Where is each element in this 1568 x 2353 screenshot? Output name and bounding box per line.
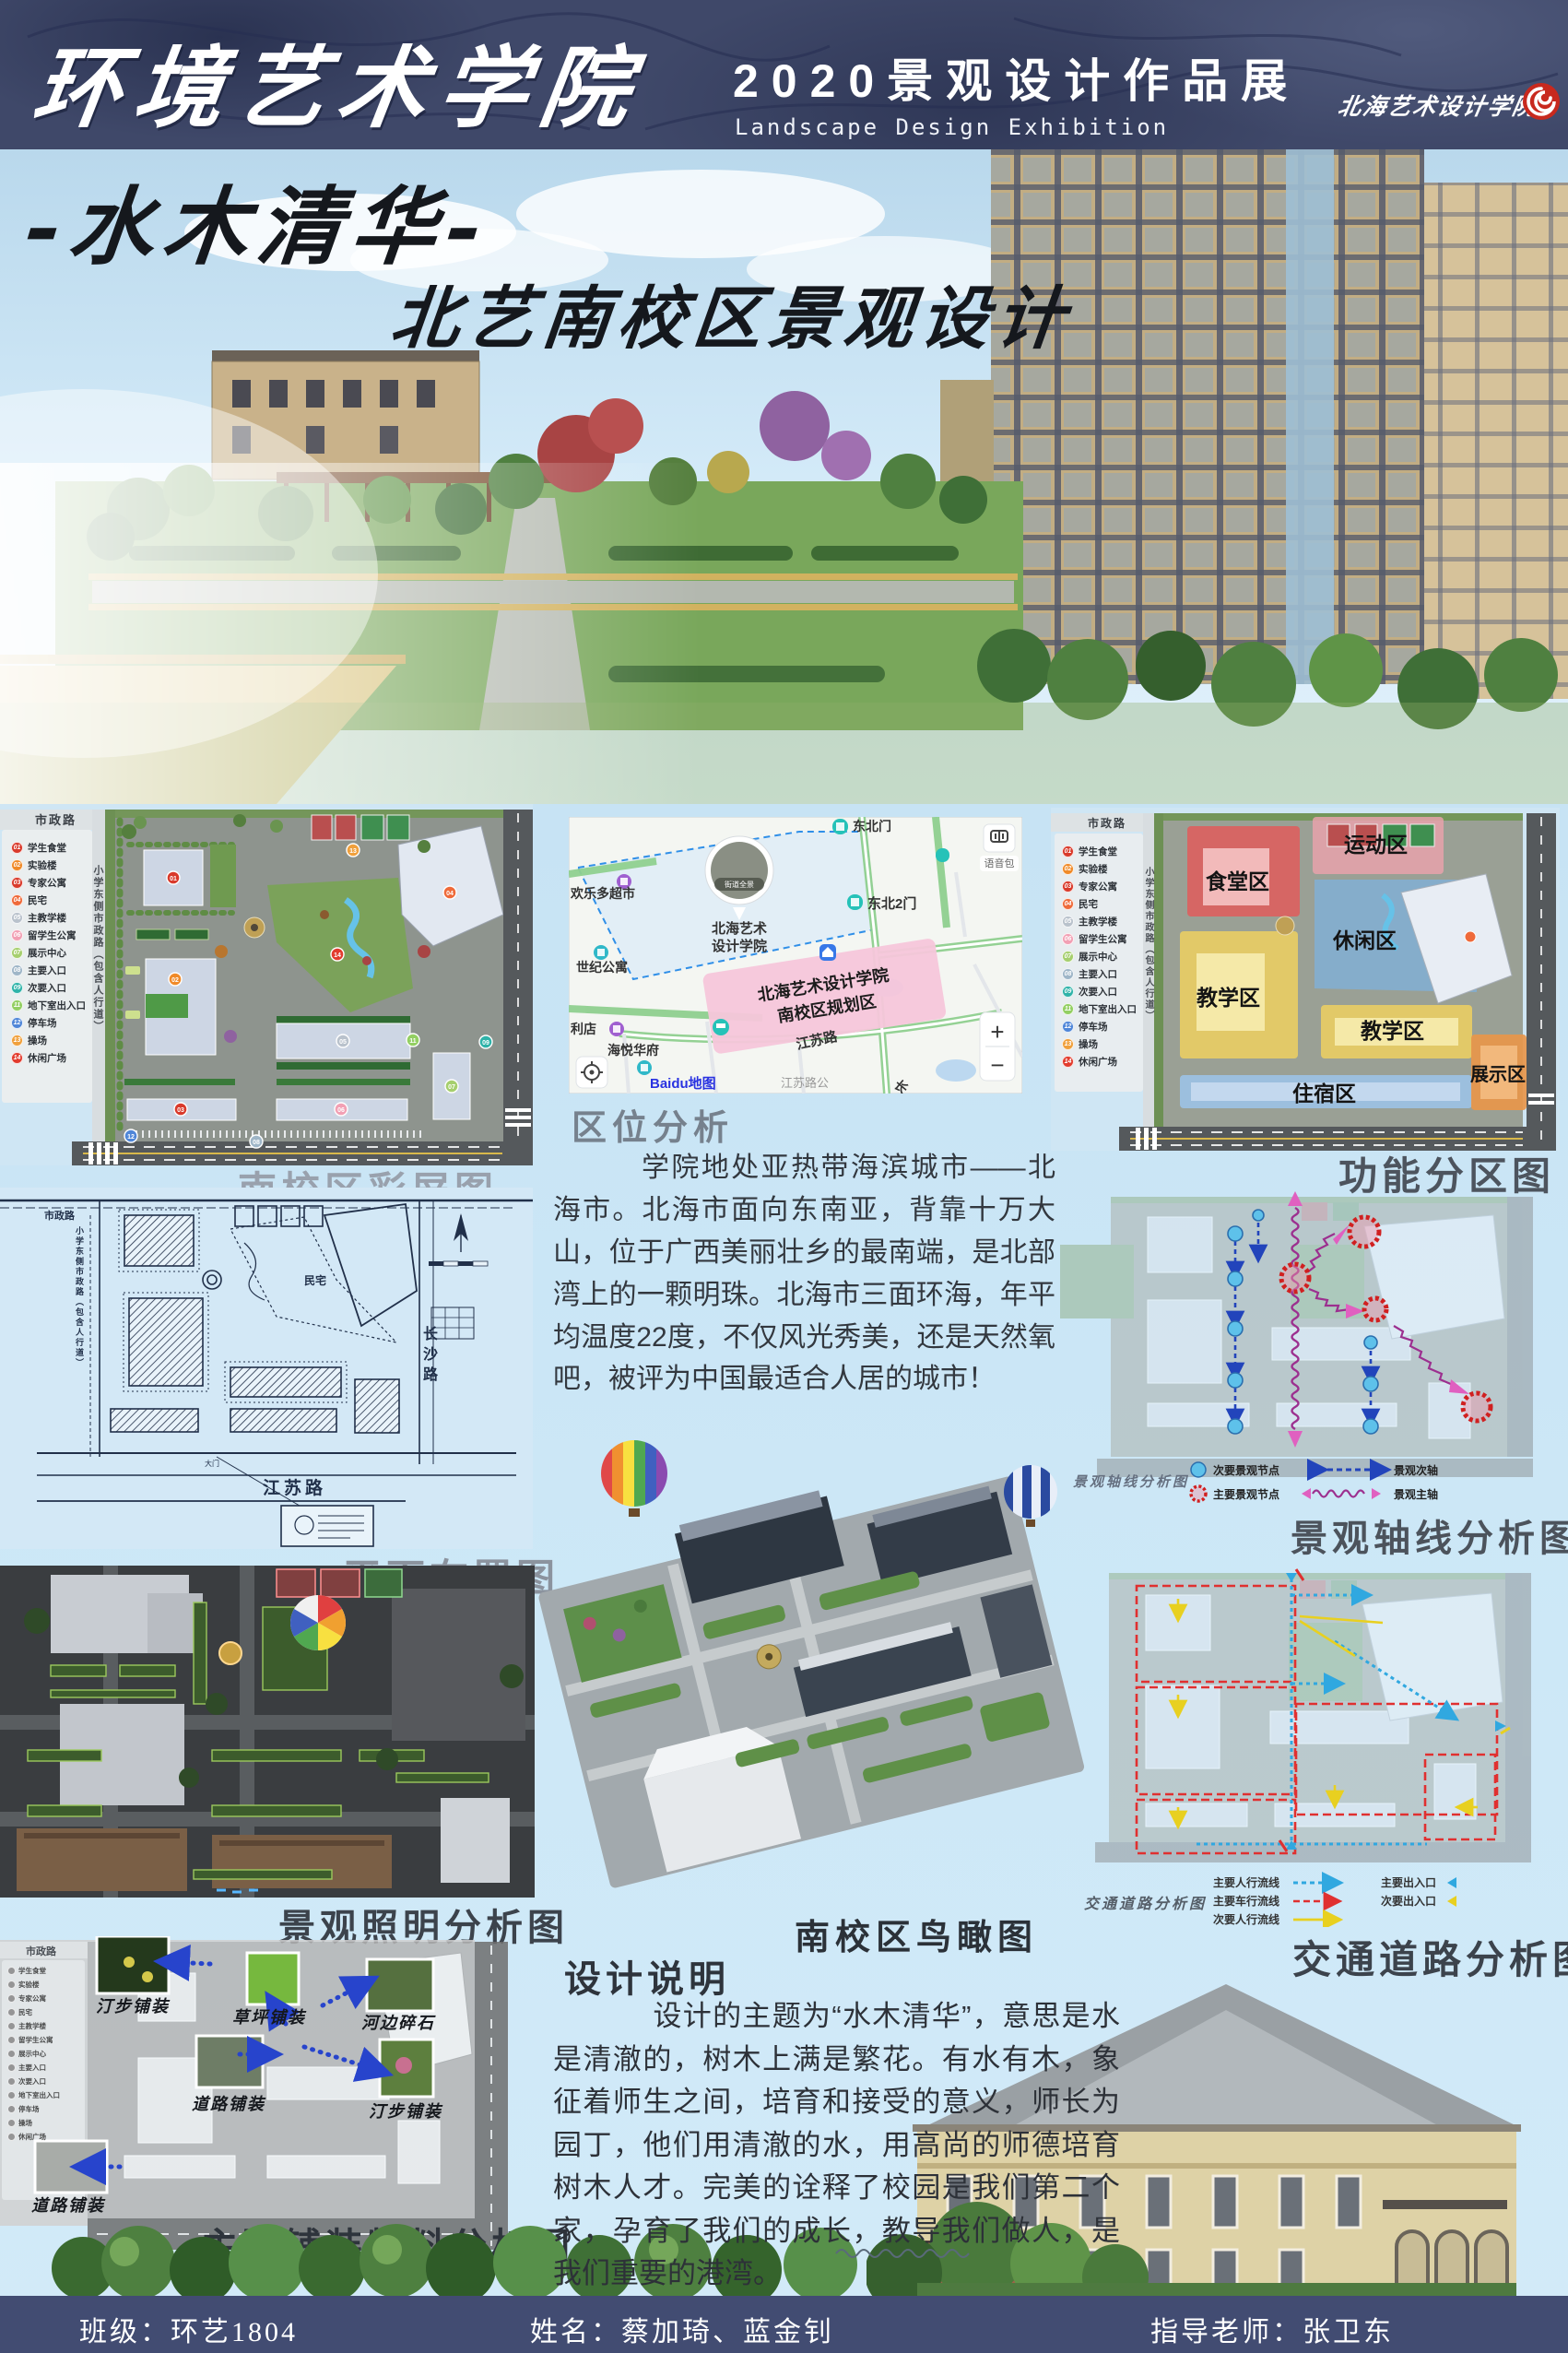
pavement-legend: 学生食堂 实验楼 专家公寓 民宅 主教学楼 留学生公寓 展示中心 主要入口 次要… — [7, 1966, 60, 2142]
traffic-legend-veh-main: 主要车行流线 — [1213, 1894, 1279, 1908]
legend-item: 06留学生公寓 — [11, 928, 86, 942]
axis-legend-main-node: 主要景观节点 — [1213, 1487, 1279, 1501]
legend-item: 05主教学楼 — [11, 911, 86, 925]
school-logo-text: 北海艺术设计学院 — [1336, 89, 1540, 122]
legend-item: 08主要入口 — [1062, 967, 1137, 981]
legend-item: 留学生公寓 — [7, 2035, 60, 2045]
zone-exhibition: 展示区 — [1470, 1065, 1526, 1085]
legend-item: 主教学楼 — [7, 2021, 60, 2031]
legend-item: 05主教学楼 — [1062, 915, 1137, 928]
header-band: 环境艺术学院 2020景观设计作品展 Landscape Design Exhi… — [0, 0, 1568, 149]
lighting-analysis-art — [0, 1566, 535, 1898]
legend-item: 地下室出入口 — [7, 2090, 60, 2100]
traffic-legend-entry-main: 主要出入口 — [1381, 1875, 1436, 1889]
traffic-legend-ped-main: 主要人行流线 — [1213, 1875, 1279, 1889]
legend-item: 休闲广场 — [7, 2132, 60, 2142]
axis-legend-main-axis: 景观主轴 — [1394, 1487, 1438, 1501]
school-title: 环境艺术学院 — [26, 17, 653, 145]
map-ne-gate: 东北门 — [853, 819, 891, 834]
legend-item: 07展示中心 — [11, 946, 86, 960]
traffic-legend-ped-secondary: 次要人行流线 — [1213, 1912, 1279, 1926]
exhibition-subtitle: Landscape Design Exhibition — [735, 114, 1169, 140]
legend-item: 06留学生公寓 — [1062, 932, 1137, 946]
legend-item: 14休闲广场 — [11, 1051, 86, 1065]
traffic-inner-label: 交通道路分析图 — [1084, 1895, 1207, 1912]
pin-12: 12 — [127, 1134, 135, 1141]
zoom-in-button[interactable]: + — [990, 1018, 1004, 1046]
school-logo-icon — [1521, 81, 1562, 122]
road-municipal-label: 市政路 — [35, 813, 77, 827]
exhibition-title: 2020景观设计作品展 — [733, 44, 1300, 111]
legend-item: 13操场 — [11, 1034, 86, 1047]
traffic-analysis-art: 主要人行流线 主要出入口 主要车行流线 次要出入口 次要人行流线 交通道路分析图 — [1058, 1566, 1568, 1927]
map-zoom-control[interactable]: + − — [980, 1012, 1015, 1081]
zone-canteen: 食堂区 — [1206, 869, 1269, 893]
bp-residence: 民宅 — [304, 1273, 326, 1287]
axis-analysis-art: 次要景观节点 景观次轴 主要景观节点 景观主轴 景观轴线分析图 — [1060, 1189, 1562, 1505]
legend-item: 09次要入口 — [11, 981, 86, 995]
legend-item: 展示中心 — [7, 2049, 60, 2059]
master-plan-legend: 01学生食堂 02实验楼 03专家公寓 04民宅 05主教学楼 06留学生公寓 … — [11, 841, 86, 1065]
legend-item: 民宅 — [7, 2007, 60, 2017]
pin-09: 09 — [482, 1040, 489, 1046]
college-label-1: 北海艺术 — [712, 920, 767, 937]
legend-item: 12停车场 — [1062, 1020, 1137, 1034]
legend-item: 实验楼 — [7, 1980, 60, 1990]
legend-item: 04民宅 — [11, 893, 86, 907]
pin-04: 04 — [446, 891, 454, 897]
axis-legend-secondary-axis: 景观次轴 — [1394, 1463, 1438, 1477]
legend-item: 02实验楼 — [11, 858, 86, 872]
zone-teaching-2: 教学区 — [1361, 1019, 1424, 1043]
pavement-label-stepping2: 汀步铺装 — [369, 2102, 443, 2121]
bp-road-municipal: 市政路 — [44, 1209, 76, 1222]
voice-pack-label: 语音包 — [984, 857, 1015, 869]
footer-teacher: 指导老师：张卫东 — [1150, 2309, 1394, 2349]
pin-03: 03 — [177, 1107, 184, 1114]
pv-road-municipal: 市政路 — [26, 1945, 57, 1957]
location-heading: 区位分析 — [572, 1099, 734, 1150]
footer-names: 姓名：蔡加琦、蓝金钊 — [530, 2309, 834, 2349]
location-map: 北海艺术设计学院 南校区规划区 街道全景 北海艺术 设计学院 东北门 东北2门 — [569, 817, 1022, 1094]
birdseye-caption: 南校区鸟瞰图 — [795, 1909, 1038, 1959]
legend-item: 04民宅 — [1062, 897, 1137, 911]
legend-item: 14休闲广场 — [1062, 1055, 1137, 1069]
map-bus-stop: 江苏路公 — [781, 1076, 829, 1090]
legend-item: 学生食堂 — [7, 1966, 60, 1976]
locate-button[interactable] — [576, 1057, 607, 1088]
pin-05: 05 — [339, 1039, 347, 1046]
pavement-label-road2: 道路铺装 — [31, 2196, 106, 2215]
legend-item: 02实验楼 — [1062, 862, 1137, 876]
zone-leisure: 休闲区 — [1332, 928, 1397, 952]
pin-02: 02 — [171, 977, 179, 984]
bp-gate: 大门 — [205, 1459, 219, 1468]
hero-sub-title: 北艺南校区景观设计 — [386, 264, 1077, 362]
pin-13: 13 — [349, 848, 357, 855]
map-supermarket: 欢乐多超市 — [570, 886, 635, 901]
legend-item: 11地下室出入口 — [11, 999, 86, 1012]
footer-class: 班级：环艺1804 — [79, 2309, 298, 2349]
college-label-2: 设计学院 — [712, 938, 767, 954]
axis-legend-secondary-node: 次要景观节点 — [1213, 1463, 1279, 1477]
legend-item: 12停车场 — [11, 1016, 86, 1030]
pavement-label-riverstone: 河边碎石 — [361, 2014, 436, 2032]
pin-06: 06 — [337, 1107, 345, 1114]
road-schoolside-label-2: 小学东侧市政路（包含人行道） — [1141, 867, 1155, 1106]
pin-14: 14 — [334, 952, 341, 959]
pavement-label-stepping1: 汀步铺装 — [96, 1997, 171, 2016]
map-store: 利店 — [571, 1022, 596, 1036]
legend-item: 停车场 — [7, 2104, 60, 2114]
pavement-overlays: 汀步铺装 草坪铺装 河边碎石 道路铺装 汀步铺装 道路铺装 市政路 — [0, 1936, 544, 2255]
footer-band: 班级：环艺1804 姓名：蔡加琦、蓝金钊 指导老师：张卫东 — [0, 2296, 1568, 2353]
bp-road-schoolside: 小学东侧市政路（包含人行道） — [74, 1226, 86, 1448]
legend-item: 01学生食堂 — [1062, 845, 1137, 858]
road-municipal-label-2: 市政路 — [1088, 816, 1126, 830]
pin-07: 07 — [448, 1084, 455, 1091]
zone-sports: 运动区 — [1344, 833, 1408, 857]
bp-road-changsha: 长沙路 — [417, 1326, 439, 1400]
baidu-logo: Baidu地图 — [650, 1075, 716, 1092]
zone-teaching-1: 教学区 — [1197, 986, 1260, 1010]
map-apartment: 世纪公寓 — [576, 960, 628, 975]
legend-item: 09次要入口 — [1062, 985, 1137, 999]
legend-item: 次要入口 — [7, 2076, 60, 2087]
pavement-label-road1: 道路铺装 — [192, 2095, 266, 2113]
road-schoolside-label: 小学东侧市政路（包含人行道） — [90, 865, 105, 1123]
map-estate: 海悦华府 — [607, 1043, 659, 1058]
traffic-legend-entry-secondary: 次要出入口 — [1381, 1894, 1436, 1908]
axis-caption: 景观轴线分析图 — [1291, 1508, 1568, 1562]
map-ne-gate2: 东北2门 — [867, 895, 916, 912]
legend-item: 01学生食堂 — [11, 841, 86, 855]
legend-item: 13操场 — [1062, 1037, 1137, 1051]
pin-01: 01 — [170, 876, 177, 882]
location-body: 学院地处亚热带海滨城市——北海市。北海市面向东南亚，背靠十万大山，位于广西美丽壮… — [553, 1147, 1055, 1401]
legend-item: 11地下室出入口 — [1062, 1002, 1137, 1016]
zoom-out-button[interactable]: − — [990, 1051, 1004, 1079]
function-zone-legend: 01学生食堂 02实验楼 03专家公寓 04民宅 05主教学楼 06留学生公寓 … — [1062, 845, 1137, 1069]
legend-item: 08主要入口 — [11, 964, 86, 977]
bp-jiangsu: 江苏路 — [263, 1477, 326, 1498]
zone-dorm: 住宿区 — [1292, 1082, 1356, 1106]
design-underline-squiggle — [834, 2246, 1000, 2259]
pin-11: 11 — [409, 1038, 417, 1045]
legend-item: 03专家公寓 — [1062, 880, 1137, 893]
street-view-label: 街道全景 — [725, 880, 754, 889]
birdseye-render — [514, 1435, 1095, 1907]
legend-item: 专家公寓 — [7, 1993, 60, 2004]
legend-item: 07展示中心 — [1062, 950, 1137, 964]
legend-item: 03专家公寓 — [11, 876, 86, 890]
pin-08: 08 — [253, 1140, 260, 1146]
voice-pack-button[interactable]: 语音包 — [980, 824, 1019, 871]
legend-item: 操场 — [7, 2118, 60, 2128]
pavement-label-lawn: 草坪铺装 — [232, 2008, 307, 2027]
poster-canvas: 环境艺术学院 2020景观设计作品展 Landscape Design Exhi… — [0, 0, 1568, 2353]
legend-item: 主要入口 — [7, 2063, 60, 2073]
